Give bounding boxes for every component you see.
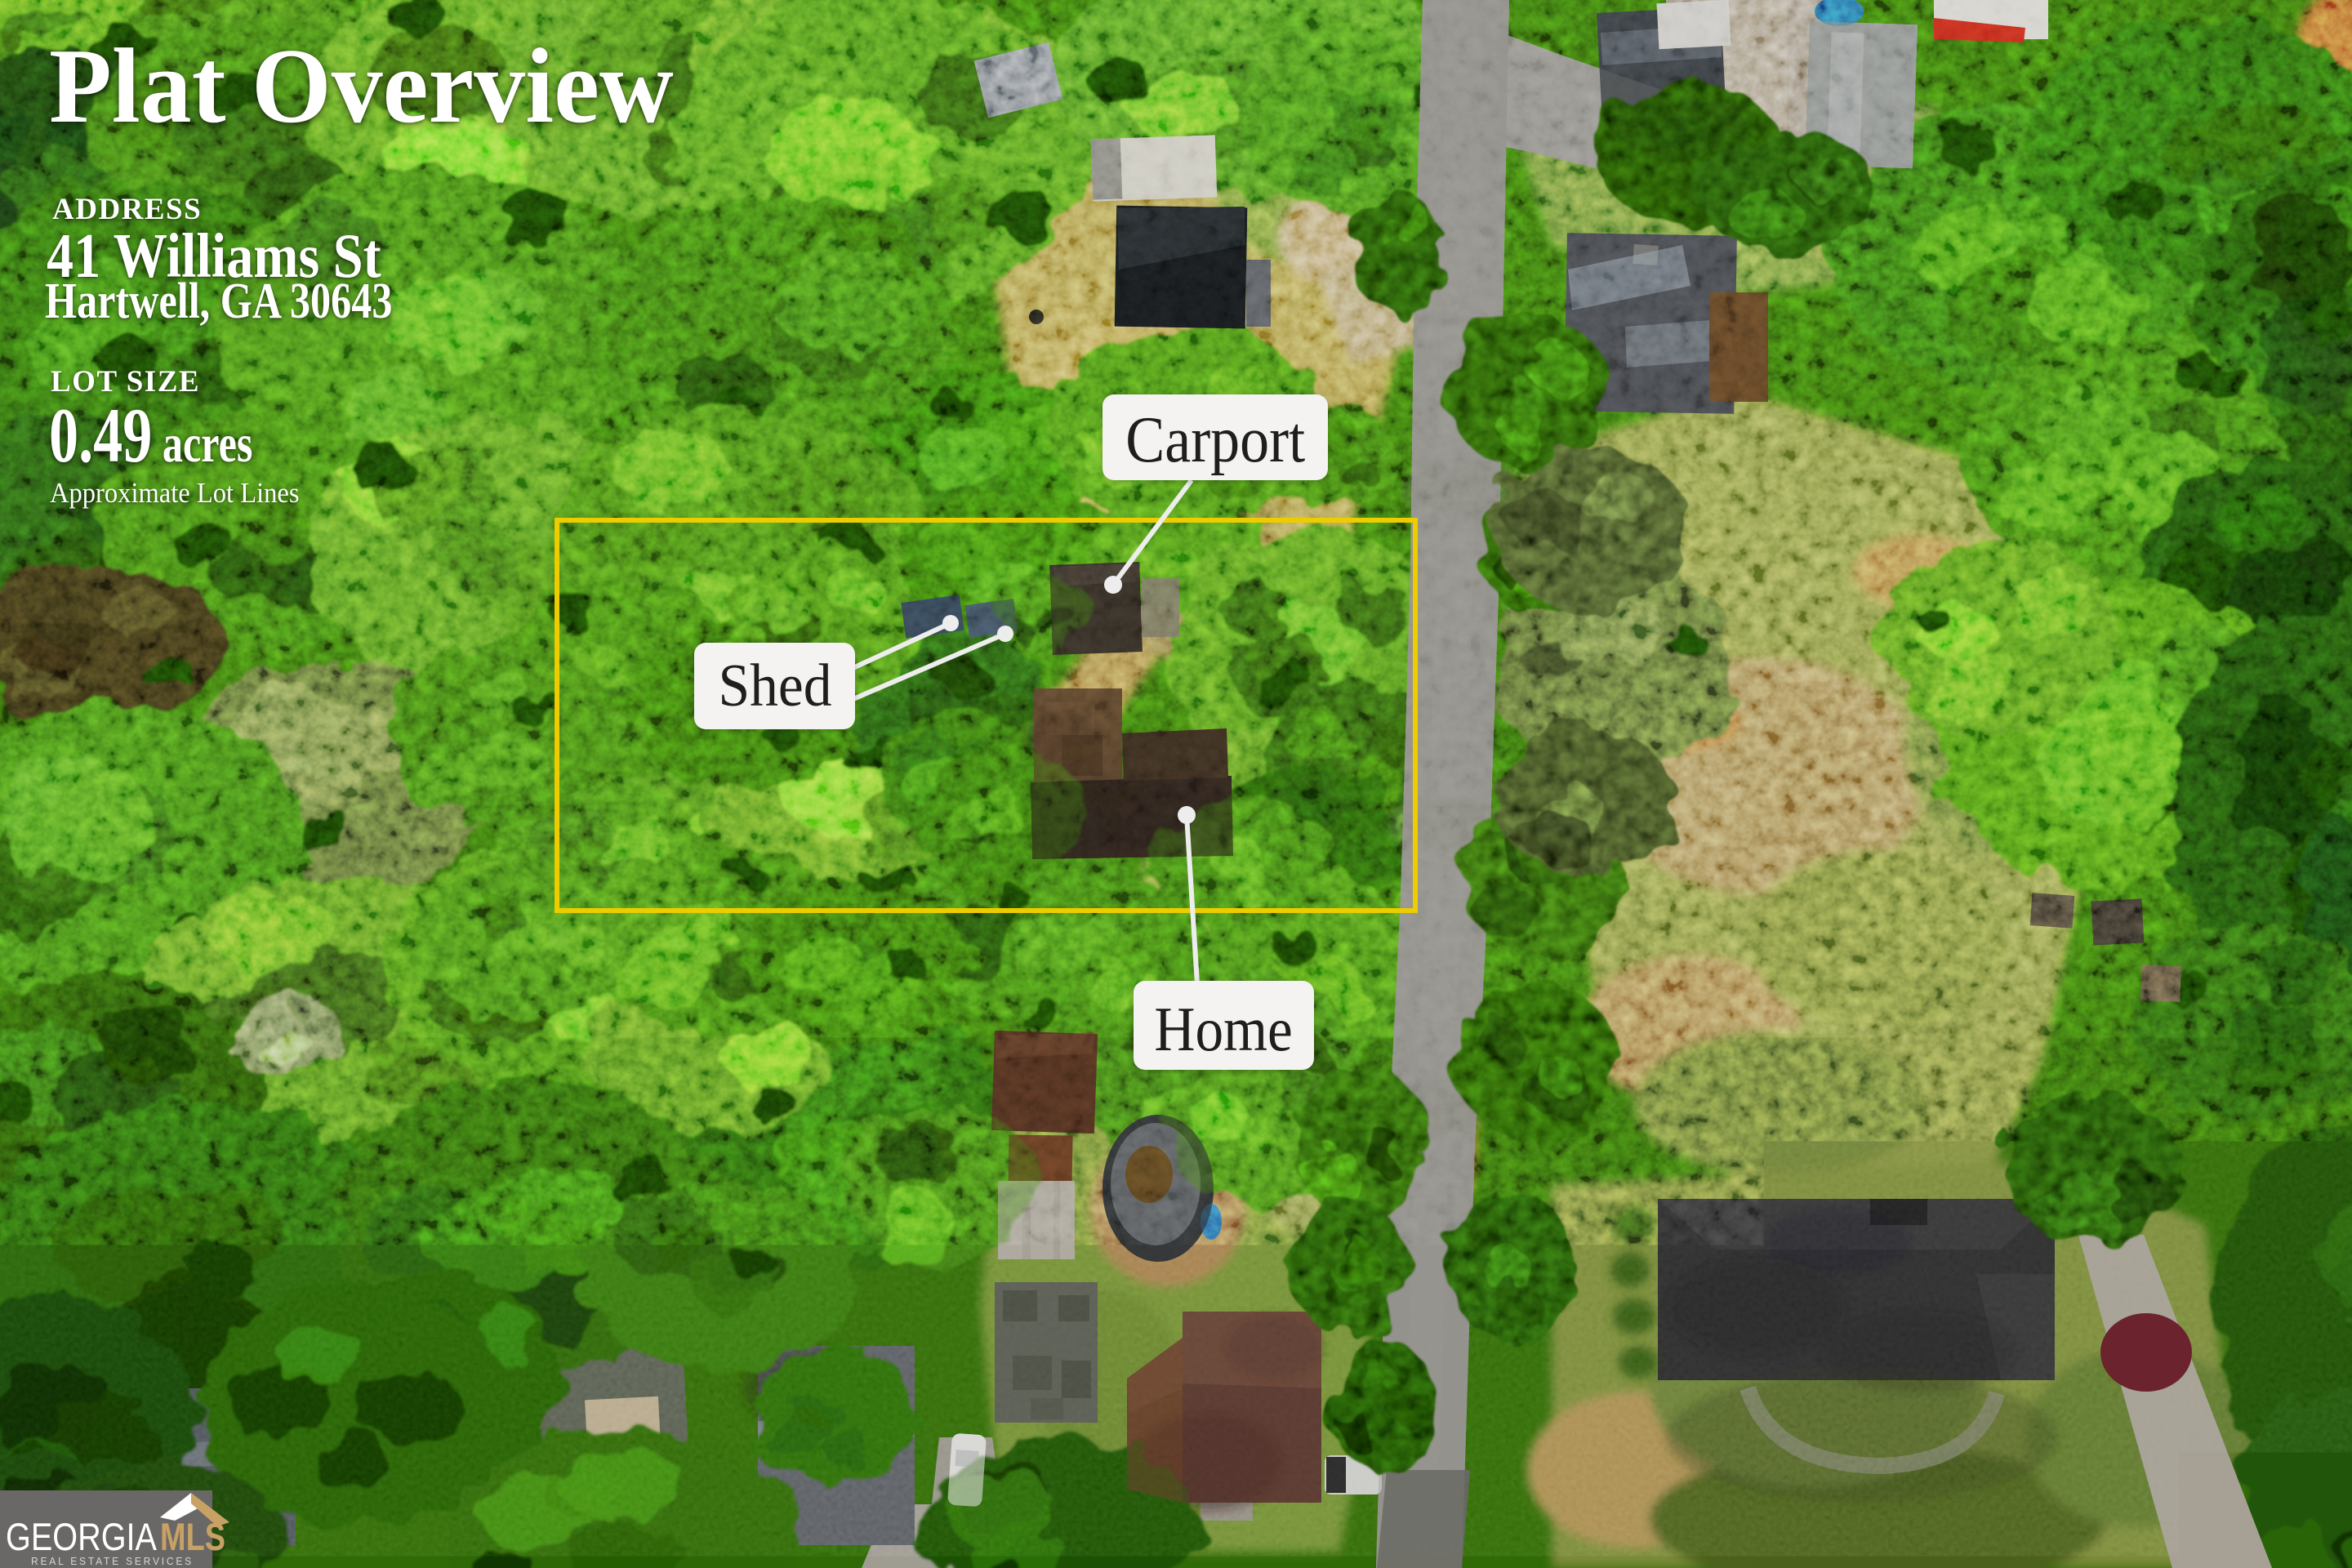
svg-text:REAL ESTATE SERVICES: REAL ESTATE SERVICES (31, 1555, 194, 1567)
svg-text:MLS: MLS (160, 1515, 225, 1558)
svg-text:GEORGIA: GEORGIA (6, 1515, 158, 1558)
